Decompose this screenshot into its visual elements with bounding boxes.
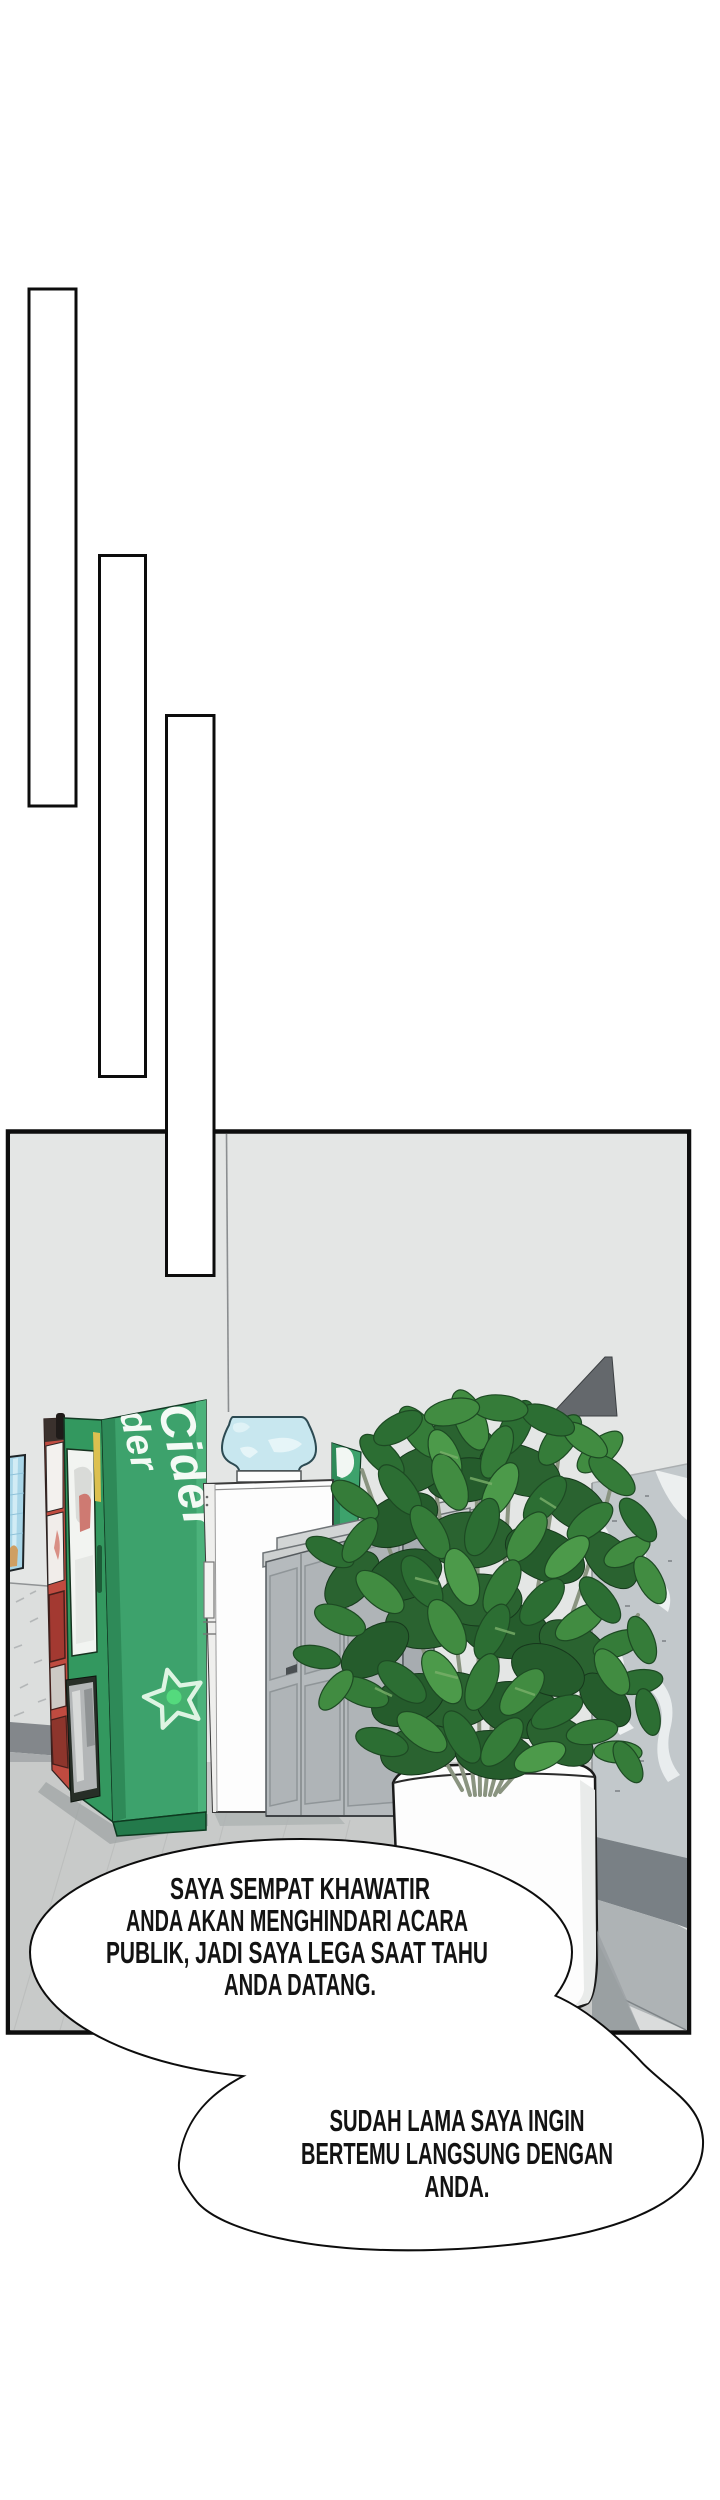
svg-text:BERTEMU LANGSUNG DENGAN: BERTEMU LANGSUNG DENGAN xyxy=(301,2136,613,2171)
svg-text:SUDAH LAMA SAYA INGIN: SUDAH LAMA SAYA INGIN xyxy=(330,2103,585,2138)
svg-text:PUBLIK, JADI SAYA LEGA SAAT TA: PUBLIK, JADI SAYA LEGA SAAT TAHU xyxy=(106,1935,488,1970)
svg-text:ANDA DATANG.: ANDA DATANG. xyxy=(224,1967,376,2002)
svg-text:SAYA SEMPAT KHAWATIR: SAYA SEMPAT KHAWATIR xyxy=(170,1871,430,1906)
svg-text:ANDA.: ANDA. xyxy=(425,2169,490,2204)
svg-text:ANDA AKAN MENGHINDARI ACARA: ANDA AKAN MENGHINDARI ACARA xyxy=(126,1903,468,1938)
